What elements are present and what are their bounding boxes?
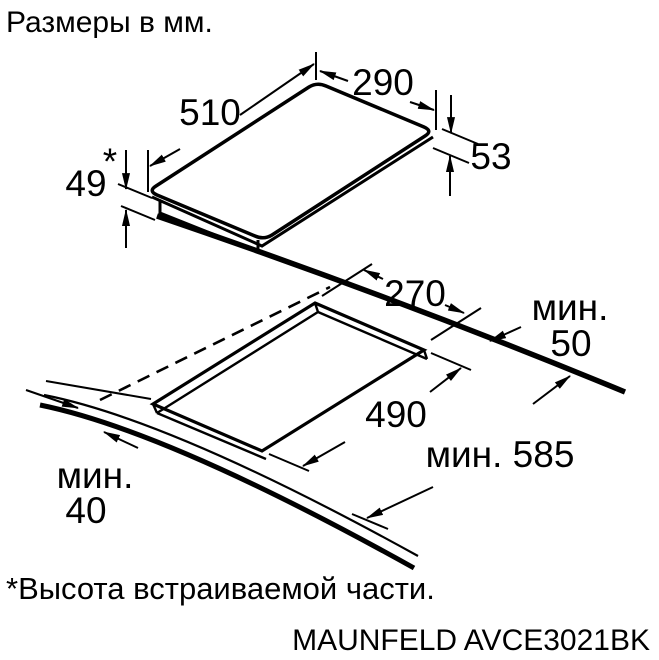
dim-arrow xyxy=(490,327,521,341)
dimension-49: 49 * xyxy=(65,141,155,248)
extension-tick xyxy=(431,353,471,370)
dim-arrow xyxy=(445,305,464,313)
dim-arrow xyxy=(367,487,433,518)
cutout-length-label: 490 xyxy=(365,394,427,435)
dim-arrow xyxy=(410,102,434,110)
model-name: MAUNFELD AVCE3021BK xyxy=(292,624,650,657)
dimension-min-50: мин. 50 xyxy=(490,287,608,364)
dimension-diagram-page: Размеры в мм. 510 290 53 49 * xyxy=(0,0,659,660)
dim-arrow xyxy=(430,368,461,392)
rear-clearance-min-label: мин. xyxy=(532,287,609,328)
dimension-min-40: мин. 40 xyxy=(26,390,138,531)
hob-length-label: 510 xyxy=(179,92,241,133)
extension-tick xyxy=(118,184,152,198)
extension-tick xyxy=(269,454,309,471)
cutout-inner-lip xyxy=(153,303,427,459)
dim-arrow xyxy=(533,376,570,404)
rear-clearance-value: 50 xyxy=(550,323,591,364)
builtin-height-asterisk: * xyxy=(103,141,117,182)
dim-arrow xyxy=(303,442,345,466)
dimension-270: 270 xyxy=(322,264,481,340)
dim-arrow xyxy=(364,270,383,279)
installation-diagram: Размеры в мм. 510 290 53 49 * xyxy=(0,0,659,660)
dimension-510: 510 xyxy=(148,52,316,192)
dim-arrow xyxy=(320,71,348,81)
worktop-depth-label: мин. 585 xyxy=(426,434,575,475)
front-clearance-value: 40 xyxy=(65,490,106,531)
hob-builtin-height-label: 49 xyxy=(65,163,106,204)
cutout-depth-label: 270 xyxy=(384,273,446,314)
cutout-front-extension-line xyxy=(46,381,151,399)
dimension-290: 290 xyxy=(320,62,436,130)
page-title: Размеры в мм. xyxy=(6,6,213,39)
hob-depth-label: 290 xyxy=(352,62,414,103)
reference-dashed-line xyxy=(100,287,330,400)
dim-arrow xyxy=(150,149,180,166)
builtin-height-footnote: *Высота встраиваемой части. xyxy=(6,571,435,606)
hob-height-label: 53 xyxy=(470,136,511,177)
dimension-53: 53 xyxy=(433,95,512,196)
